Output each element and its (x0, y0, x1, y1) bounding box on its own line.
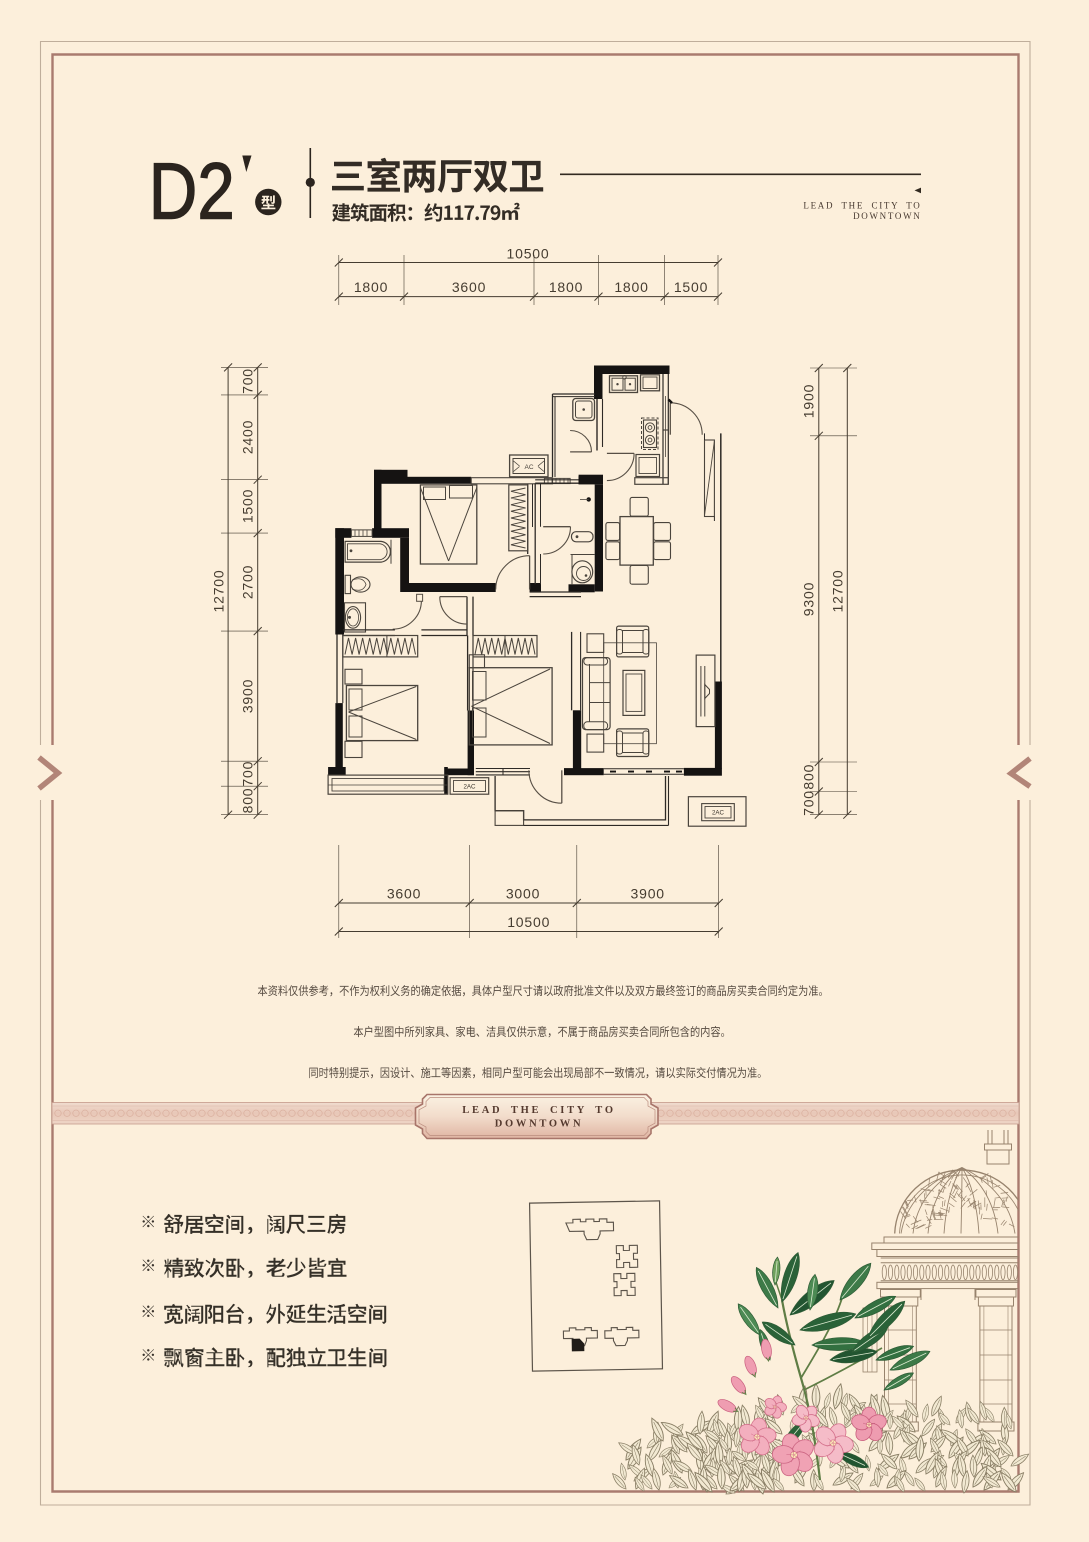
svg-text:2700: 2700 (240, 565, 256, 599)
svg-text:1500: 1500 (240, 489, 256, 523)
svg-text:LEAD THE CITY TO: LEAD THE CITY TO (462, 1105, 615, 1116)
svg-text:10500: 10500 (507, 914, 550, 930)
svg-text:DOWNTOWN: DOWNTOWN (495, 1118, 584, 1129)
svg-text:12700: 12700 (211, 570, 227, 613)
svg-text:DOWNTOWN: DOWNTOWN (853, 211, 921, 221)
svg-text:2AC: 2AC (712, 810, 725, 817)
svg-text:AC: AC (524, 464, 533, 471)
svg-text:10500: 10500 (507, 246, 550, 262)
svg-text:1800: 1800 (354, 279, 388, 295)
svg-text:1900: 1900 (801, 384, 817, 418)
svg-text:1500: 1500 (674, 279, 708, 295)
svg-text:3600: 3600 (387, 885, 421, 901)
svg-text:9300: 9300 (801, 582, 817, 616)
svg-text:3900: 3900 (240, 679, 256, 713)
svg-text:12700: 12700 (829, 570, 845, 613)
svg-text:3900: 3900 (631, 885, 665, 901)
svg-text:LEAD THE CITY TO: LEAD THE CITY TO (803, 200, 921, 210)
svg-text:1800: 1800 (614, 279, 648, 295)
svg-text:800: 800 (801, 764, 817, 790)
svg-text:2AC: 2AC (463, 783, 476, 790)
svg-text:1800: 1800 (549, 279, 583, 295)
svg-text:D2: D2 (149, 146, 235, 236)
svg-text:800: 800 (240, 788, 256, 814)
svg-text:700: 700 (240, 761, 256, 787)
svg-text:2400: 2400 (240, 420, 256, 454)
svg-text:3000: 3000 (506, 885, 540, 901)
svg-text:3600: 3600 (452, 279, 486, 295)
svg-text:700: 700 (240, 368, 256, 394)
svg-text:700: 700 (801, 790, 817, 816)
